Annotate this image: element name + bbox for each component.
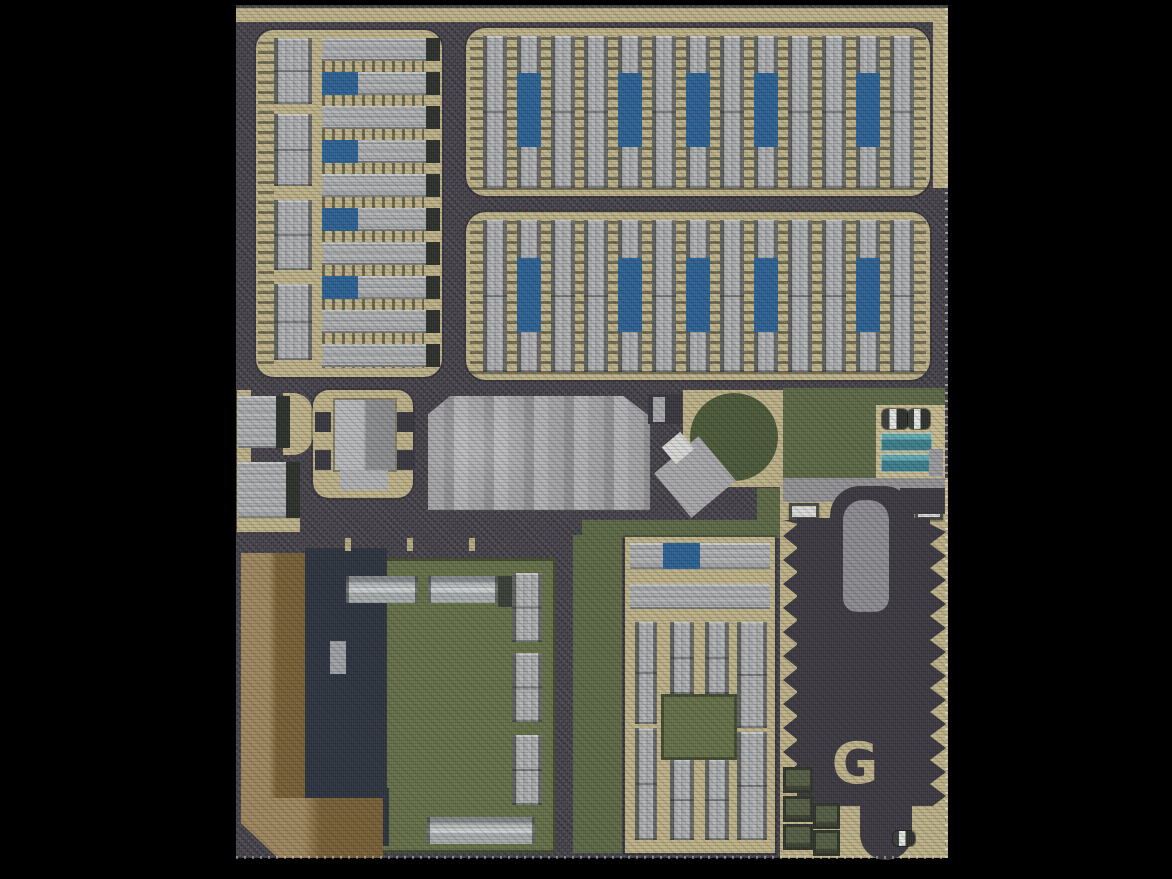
nw-blue-roof-3 bbox=[322, 208, 358, 231]
storage-container-4 bbox=[813, 803, 840, 829]
lot-tail bbox=[860, 795, 912, 860]
se-barrack-c1-lower bbox=[670, 760, 694, 840]
service-vehicle bbox=[893, 831, 915, 846]
ne-b-blue-roof-5 bbox=[856, 258, 880, 332]
chapel-annex bbox=[340, 470, 388, 490]
storage-container-3 bbox=[783, 824, 813, 850]
storage-container-5 bbox=[813, 830, 840, 856]
court-barrack-n1 bbox=[346, 576, 418, 603]
se-blue-roof bbox=[663, 543, 700, 569]
base-overview-map[interactable]: G bbox=[0, 0, 1172, 879]
plaza-parking-pad-3 bbox=[397, 412, 413, 432]
track-spur bbox=[900, 488, 945, 514]
nw-blue-roof-4 bbox=[322, 276, 358, 299]
storage-container-2 bbox=[783, 796, 813, 822]
ne-b-blue-roof-1 bbox=[517, 258, 541, 332]
nw-tall-barracks-4 bbox=[274, 284, 312, 360]
ne-b-barracks-4 bbox=[584, 220, 608, 372]
plaza-parking-pad-4 bbox=[397, 450, 413, 470]
court-barrack-n2 bbox=[428, 576, 498, 603]
screenshot-canvas: G bbox=[0, 0, 1172, 879]
map-edge-east bbox=[945, 5, 948, 858]
nw-blue-roof-2 bbox=[322, 140, 358, 163]
ne-b-blue-roof-2 bbox=[618, 258, 642, 332]
road-bollard-3 bbox=[469, 538, 475, 551]
chapel-building bbox=[335, 400, 395, 470]
plaza-parking-pad-2 bbox=[315, 450, 331, 470]
nw-barracks-row-1 bbox=[322, 38, 440, 61]
ne-a-blue-roof-5 bbox=[856, 73, 880, 147]
nw-tall-barracks-3 bbox=[274, 200, 312, 270]
se-barrack-w-upper bbox=[635, 622, 657, 724]
nw-barracks-row-10 bbox=[322, 344, 440, 367]
pool-1 bbox=[881, 433, 932, 451]
ne-a-barracks-13 bbox=[890, 36, 914, 188]
se-court-green bbox=[661, 694, 737, 760]
court-barrack-e1 bbox=[512, 573, 542, 642]
utility-shed bbox=[653, 397, 665, 422]
map-edge-south bbox=[236, 856, 948, 859]
nw-block-west-clutter bbox=[258, 42, 274, 364]
court-barrack-e2 bbox=[512, 653, 542, 722]
ne-a-barracks-6 bbox=[652, 36, 676, 188]
se-barrack-e-upper bbox=[737, 622, 767, 728]
ne-b-blue-roof-4 bbox=[754, 258, 778, 332]
ne-b-barracks-6 bbox=[652, 220, 676, 372]
ne-a-blue-roof-3 bbox=[686, 73, 710, 147]
nw-barracks-row-5 bbox=[322, 174, 440, 197]
nw-barracks-row-7 bbox=[322, 242, 440, 265]
road-bollard-2 bbox=[407, 538, 413, 551]
courtyard-east-green bbox=[573, 535, 622, 853]
ne-b-barracks-13 bbox=[890, 220, 914, 372]
g-shaped-island: G bbox=[826, 734, 884, 794]
se-barrack-c2-upper bbox=[705, 622, 729, 694]
ne-b-barracks-8 bbox=[720, 220, 744, 372]
nw-blue-roof-1 bbox=[322, 72, 358, 95]
pool-carport-2 bbox=[908, 409, 930, 429]
court-barrack-e3 bbox=[512, 735, 542, 805]
se-barrack-n2 bbox=[630, 584, 770, 609]
se-barrack-c2-lower bbox=[705, 760, 729, 840]
nw-barracks-row-3 bbox=[322, 106, 440, 129]
west-building-2 bbox=[238, 462, 300, 518]
pool-2 bbox=[881, 454, 932, 472]
ne-a-barracks-11 bbox=[822, 36, 846, 188]
north-road-shoulder bbox=[236, 8, 948, 22]
plaza-parking-pad-1 bbox=[315, 412, 331, 432]
se-barrack-c1-upper bbox=[670, 622, 694, 694]
ne-b-barracks-11 bbox=[822, 220, 846, 372]
court-barrack-s bbox=[427, 817, 535, 844]
storage-container-1 bbox=[783, 767, 813, 793]
track-infield bbox=[843, 500, 889, 612]
hangar-building bbox=[428, 396, 650, 510]
ne-b-barracks-3 bbox=[551, 220, 575, 372]
ne-a-barracks-1 bbox=[483, 36, 507, 188]
ne-b-barracks-10 bbox=[788, 220, 812, 372]
nw-tall-barracks-2 bbox=[274, 114, 312, 186]
depot-roof-west bbox=[241, 553, 305, 803]
ne-a-barracks-3 bbox=[551, 36, 575, 188]
se-barrack-w-lower bbox=[635, 728, 657, 840]
ne-a-blue-roof-1 bbox=[517, 73, 541, 147]
ne-a-barracks-4 bbox=[584, 36, 608, 188]
ne-a-barracks-10 bbox=[788, 36, 812, 188]
pool-slab bbox=[929, 449, 943, 476]
ne-b-barracks-1 bbox=[483, 220, 507, 372]
west-building-1 bbox=[238, 396, 290, 448]
se-barrack-e-lower bbox=[737, 732, 767, 840]
ne-a-blue-roof-2 bbox=[618, 73, 642, 147]
se-barrack-n1 bbox=[630, 543, 770, 569]
pool-carport-1 bbox=[882, 409, 908, 429]
ne-b-blue-roof-3 bbox=[686, 258, 710, 332]
road-bollard-1 bbox=[345, 538, 351, 551]
nw-tall-barracks-1 bbox=[274, 38, 312, 104]
nw-barracks-row-9 bbox=[322, 310, 440, 333]
ne-a-barracks-8 bbox=[720, 36, 744, 188]
depot-dock bbox=[330, 641, 346, 674]
west-building-walk bbox=[238, 518, 300, 532]
ne-a-blue-roof-4 bbox=[754, 73, 778, 147]
